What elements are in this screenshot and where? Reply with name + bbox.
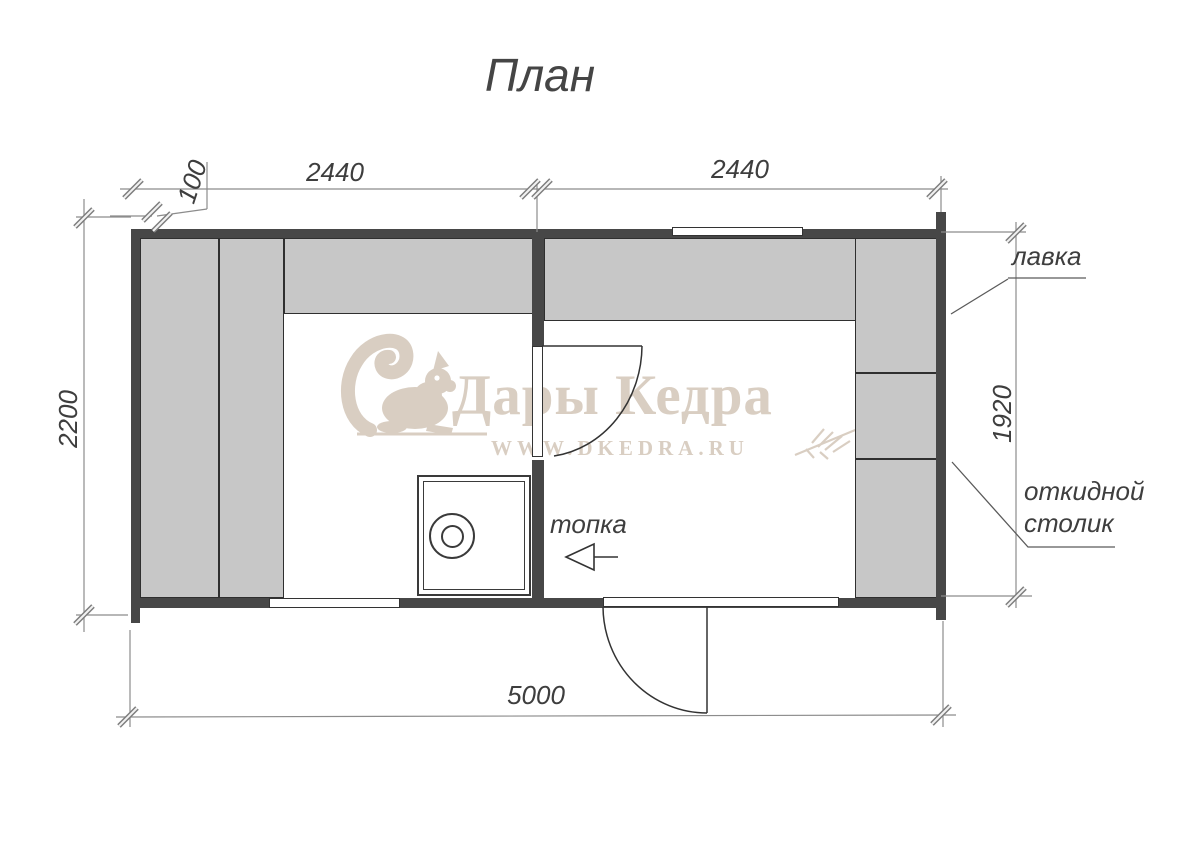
- page-title: План: [430, 48, 650, 102]
- dimension-room-left-width: 2440: [285, 157, 385, 188]
- dimension-lines: [76, 162, 1032, 727]
- label-folding-table: откидной столик: [1024, 476, 1136, 539]
- firebox-arrow-icon: [566, 544, 618, 570]
- dimension-bench-length: 1920: [987, 364, 1015, 464]
- interior-door-swing: [542, 346, 642, 456]
- dimension-linework: [0, 0, 1200, 848]
- entrance-door-swing: [603, 606, 707, 713]
- label-bench: лавка: [1012, 241, 1092, 272]
- floor-plan-canvas: Дары Кедра WWW.DKEDRA.RU: [0, 0, 1200, 848]
- dimension-depth: 2200: [53, 369, 81, 469]
- dimension-room-right-width: 2440: [690, 154, 790, 185]
- label-firebox: топка: [550, 509, 630, 540]
- dimension-total-length: 5000: [486, 680, 586, 711]
- dimension-ticks: [75, 180, 1025, 726]
